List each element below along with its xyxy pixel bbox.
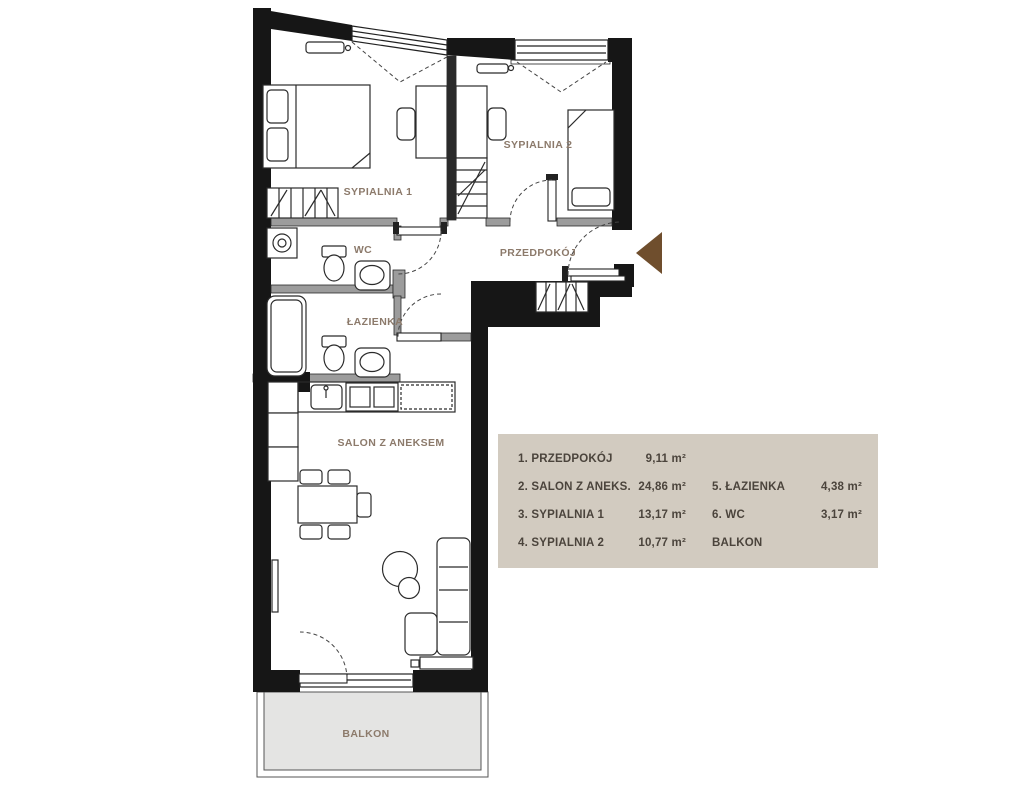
room-label-balkon: BALKON [342,728,389,740]
bed-sypialnia-2 [568,110,614,210]
desk-sypialnia-2 [456,86,506,158]
legend-room-name: 2. SALON Z ANEKS. [518,481,630,493]
desk-sypialnia-1 [397,86,447,158]
toilet-lazienka [322,336,346,371]
wardrobe-sypialnia-1 [267,188,338,218]
wardrobe-niche [456,158,487,218]
door-lazienka [397,333,441,341]
radiator-salon [272,560,278,612]
room-label-sypialnia-1: SYPIALNIA 1 [344,186,413,198]
window-sypialnia-1 [352,26,447,55]
legend-room-name: 4. SYPIALNIA 2 [518,537,630,549]
bathtub [267,296,306,376]
legend-room-area: 24,86 m² [630,481,686,493]
room-label-lazienka: ŁAZIENKA [347,316,403,328]
room-label-salon: SALON Z ANEKSEM [337,437,444,449]
radiator-sypialnia-1 [306,42,351,53]
wardrobe-przedpokoj [536,282,588,312]
legend: 1. PRZEDPOKÓJ 9,11 m² 2. SALON Z ANEKS. … [498,434,878,568]
legend-room-area: 13,17 m² [630,509,686,521]
door-sypialnia-2 [548,180,556,221]
washing-machine [267,228,297,258]
legend-room-name: 1. PRZEDPOKÓJ [518,453,630,465]
coffee-table [383,552,420,599]
dining-set [298,470,371,539]
sink-lazienka [355,348,390,377]
door-balcony [299,674,347,683]
radiator-sypialnia-2 [477,64,514,73]
toilet-wc [322,246,346,281]
legend-room-name: 5. ŁAZIENKA [712,481,804,493]
legend-row: 4. SYPIALNIA 2 10,77 m² BALKON [518,529,862,557]
floor-plan-page: SYPIALNIA 1 SYPIALNIA 2 WC PRZEDPOKÓJ ŁA… [0,0,1015,800]
legend-room-area: 3,17 m² [804,509,862,521]
legend-row: 2. SALON Z ANEKS. 24,86 m² 5. ŁAZIENKA 4… [518,473,862,501]
room-label-sypialnia-2: SYPIALNIA 2 [504,139,573,151]
legend-room-name: 3. SYPIALNIA 1 [518,509,630,521]
entrance-door [566,269,619,276]
room-label-przedpokoj: PRZEDPOKÓJ [500,246,576,259]
legend-room-area: 9,11 m² [630,453,686,465]
tv-bench [411,657,473,669]
legend-row: 1. PRZEDPOKÓJ 9,11 m² [518,445,862,473]
bed-sypialnia-1 [263,85,370,168]
entrance-door-frame [571,276,625,281]
entrance-arrow-icon [636,232,662,274]
door-sypialnia-1 [397,227,441,235]
legend-room-name: 6. WC [712,509,804,521]
window-sypialnia-2 [511,40,610,64]
room-label-wc: WC [354,244,372,256]
floor-plan: SYPIALNIA 1 SYPIALNIA 2 WC PRZEDPOKÓJ ŁA… [0,0,1015,800]
legend-room-name: BALKON [712,537,804,549]
legend-row: 3. SYPIALNIA 1 13,17 m² 6. WC 3,17 m² [518,501,862,529]
sink-wc [355,261,390,290]
legend-room-area: 4,38 m² [804,481,862,493]
kitchen-annex [268,382,455,481]
legend-room-area: 10,77 m² [630,537,686,549]
